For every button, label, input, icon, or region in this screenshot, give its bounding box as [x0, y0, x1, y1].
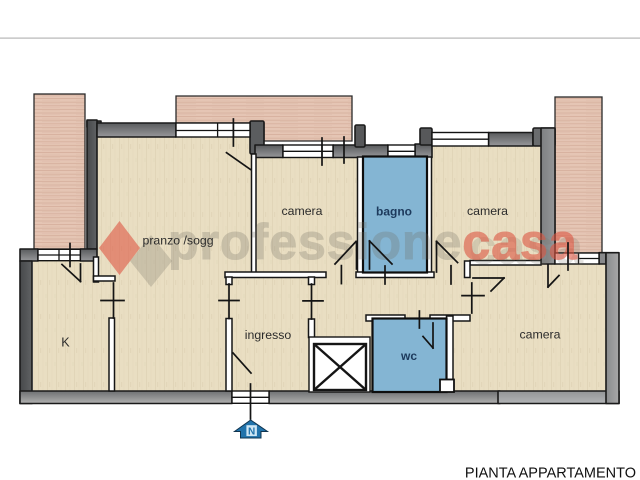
svg-text:camera: camera [467, 204, 508, 218]
svg-text:PIANTA APPARTAMENTO: PIANTA APPARTAMENTO [465, 466, 636, 480]
svg-text:wc: wc [400, 349, 417, 363]
svg-text:bagno: bagno [376, 205, 412, 219]
svg-text:ingresso: ingresso [245, 328, 292, 342]
svg-text:camera: camera [281, 204, 322, 218]
svg-text:N: N [248, 427, 255, 438]
svg-text:camera: camera [519, 328, 560, 342]
svg-text:K: K [61, 336, 70, 350]
svg-text:pranzo /sogg: pranzo /sogg [143, 234, 214, 248]
svg-text:casa: casa [462, 214, 577, 270]
